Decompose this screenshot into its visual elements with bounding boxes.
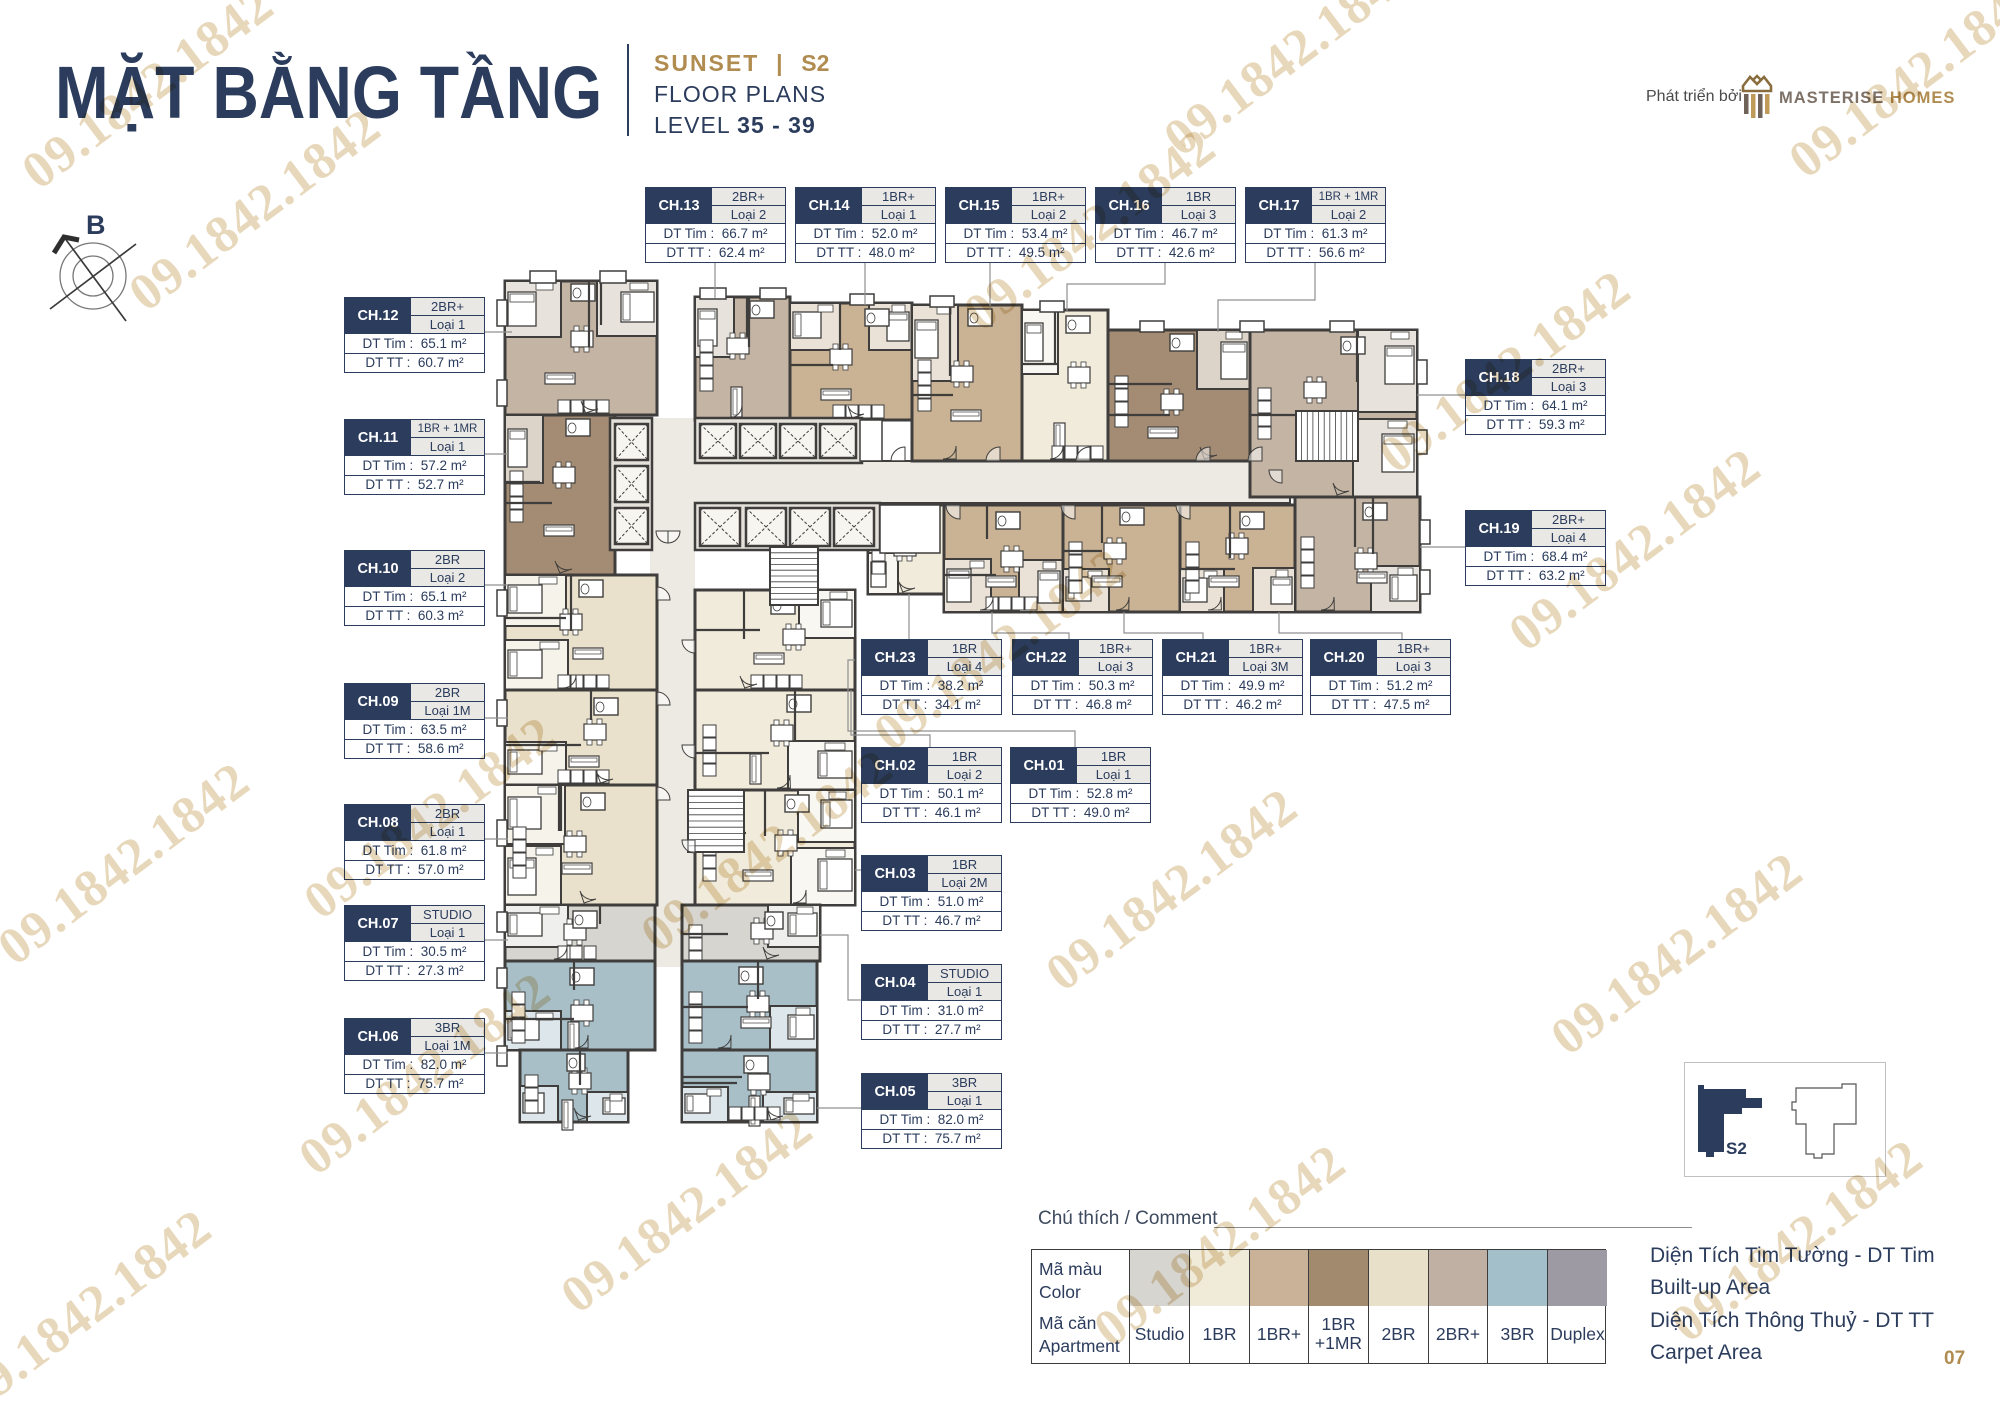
- svg-text:S2: S2: [1726, 1139, 1747, 1158]
- svg-text:B: B: [86, 210, 106, 240]
